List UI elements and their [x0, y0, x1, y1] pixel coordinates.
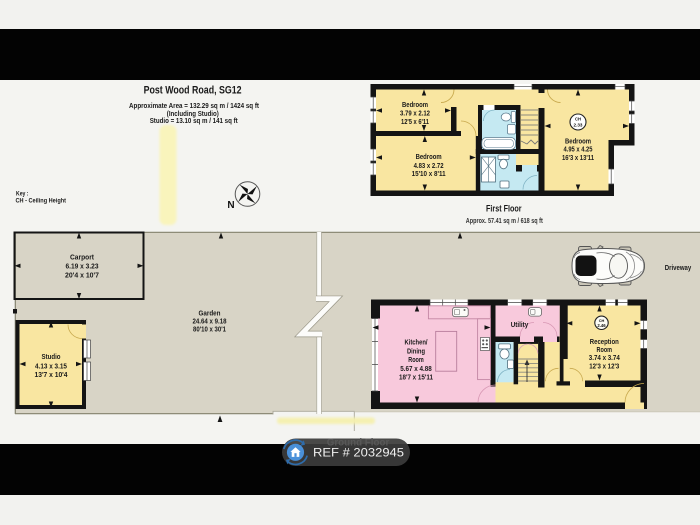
svg-text:REF # 2032945: REF # 2032945: [313, 445, 404, 459]
svg-text:Utility: Utility: [511, 320, 529, 329]
svg-text:Bedroom: Bedroom: [416, 152, 442, 161]
svg-text:CH: CH: [575, 117, 581, 122]
svg-text:Post Wood Road, SG12: Post Wood Road, SG12: [144, 85, 242, 97]
svg-text:Studio = 13.10 sq m / 141 sq: Studio = 13.10 sq m / 141 sq ft: [150, 118, 239, 125]
svg-text:6.19 x 3.23: 6.19 x 3.23: [66, 262, 99, 271]
svg-text:Approx. 57.41 sq m / 618 sq ft: Approx. 57.41 sq m / 618 sq ft: [466, 218, 544, 225]
svg-text:15'10 x 8'11: 15'10 x 8'11: [412, 169, 446, 178]
svg-text:Carport: Carport: [70, 253, 94, 262]
svg-text:80'10 x 30'1: 80'10 x 30'1: [193, 324, 226, 333]
svg-text:CH - Ceiling Height: CH - Ceiling Height: [16, 198, 67, 205]
svg-text:Driveway: Driveway: [665, 263, 692, 272]
svg-text:Approximate Area = 132.29 sq: Approximate Area = 132.29 sq m / 1424 sq…: [129, 103, 260, 110]
svg-text:12'5 x 6'11: 12'5 x 6'11: [401, 117, 429, 126]
svg-text:(Including Studio): (Including Studio): [167, 111, 219, 118]
svg-text:16'3 x 13'11: 16'3 x 13'11: [562, 153, 594, 162]
svg-text:13'7 x 10'4: 13'7 x 10'4: [35, 370, 69, 379]
svg-text:12'3 x 12'3: 12'3 x 12'3: [589, 361, 619, 370]
svg-text:20'4 x 10'7: 20'4 x 10'7: [65, 271, 99, 280]
svg-text:2.46: 2.46: [597, 323, 606, 328]
svg-text:Room: Room: [408, 355, 424, 364]
svg-text:First Floor: First Floor: [486, 204, 522, 214]
svg-text:Key :: Key :: [16, 191, 29, 198]
svg-text:18'7 x 15'11: 18'7 x 15'11: [399, 373, 433, 382]
svg-text:Kitchen/: Kitchen/: [405, 338, 428, 347]
svg-text:Studio: Studio: [42, 352, 61, 361]
svg-text:2.33: 2.33: [574, 123, 583, 128]
svg-text:N: N: [227, 200, 234, 211]
